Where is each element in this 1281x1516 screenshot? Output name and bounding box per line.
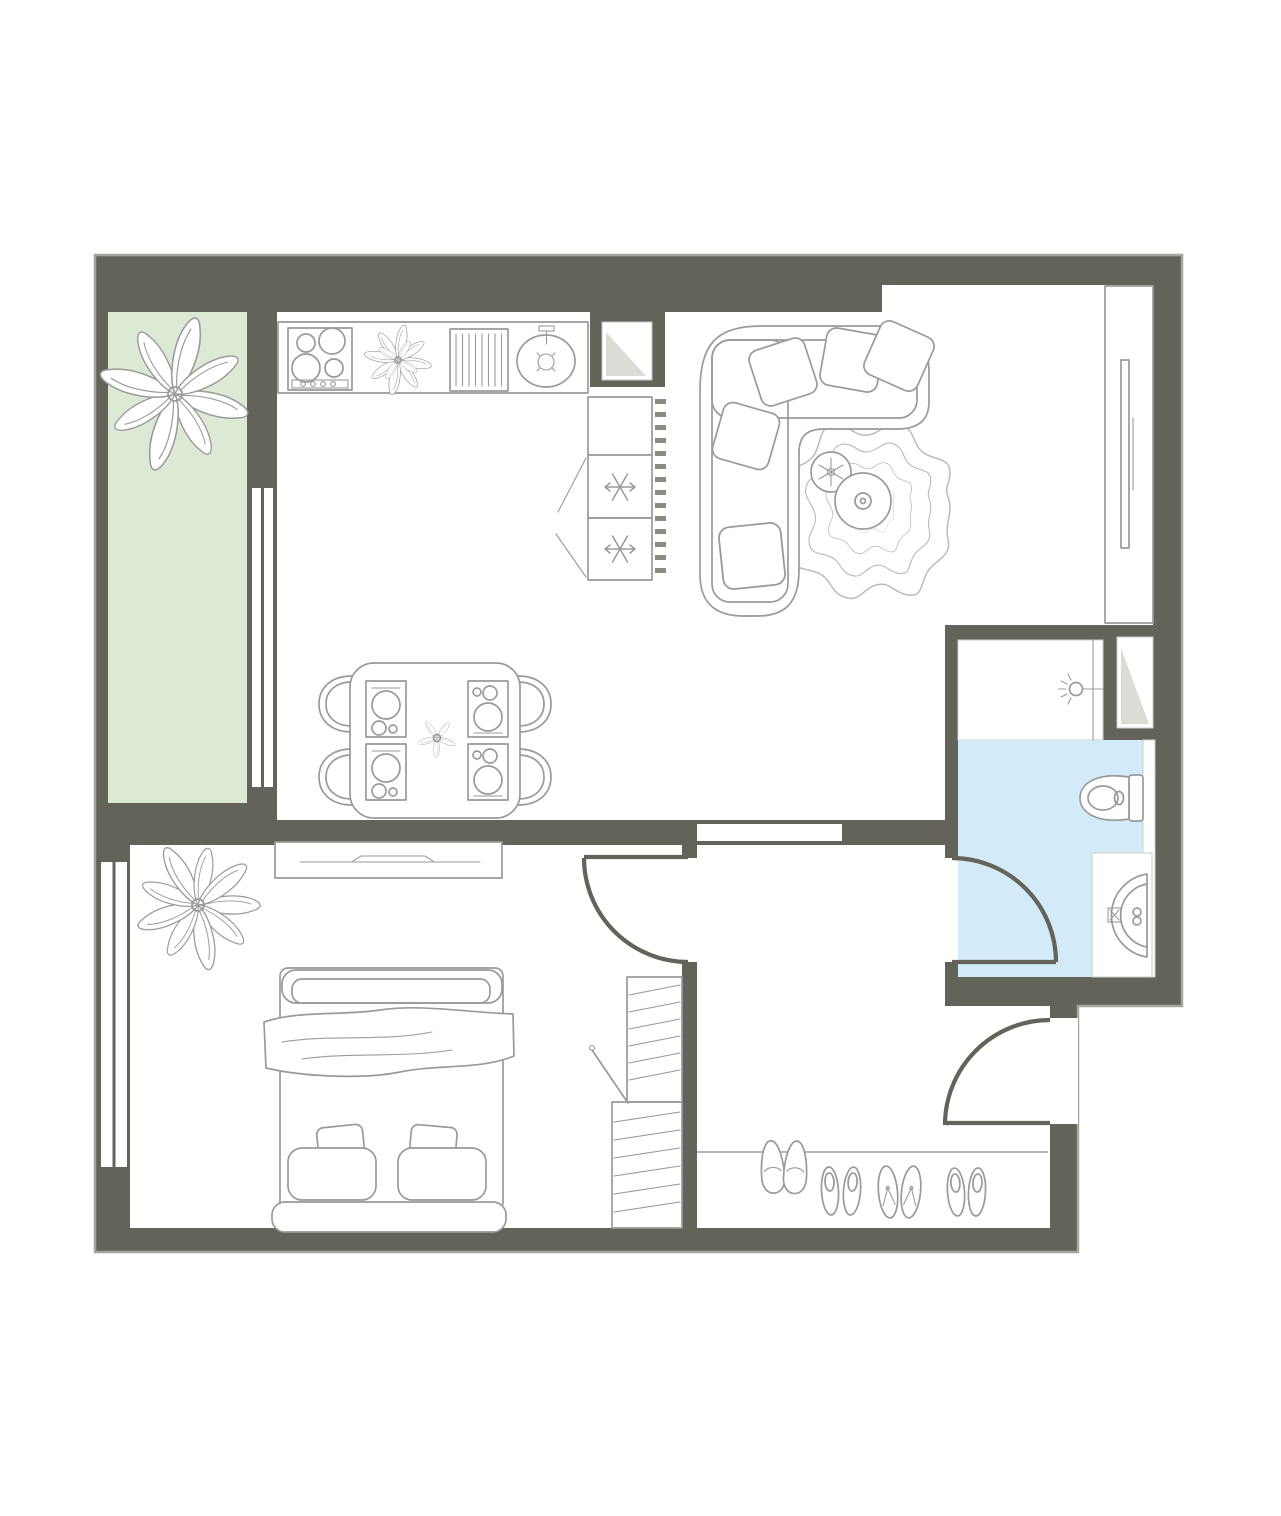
fridge-top [588,397,652,455]
passage-living-hall [697,824,842,841]
bed [264,968,514,1232]
dresser [275,842,502,878]
window-bedroom-mullion [113,862,116,1167]
coffee-table [835,473,891,529]
window-bedroom [101,862,127,1167]
tv-wall-unit [1105,286,1153,623]
dining-area [319,663,551,818]
toilet [1080,775,1143,821]
floor-bath-upper-room [958,640,1103,740]
sofa-pillow [718,522,786,590]
bed-pillow [398,1148,486,1200]
window-balcony-mullion [261,488,264,787]
floor-plan-page [0,0,1281,1516]
entry-door-opening [1050,1018,1078,1124]
window-balcony [252,488,273,787]
floor-plan-canvas [0,0,1281,1516]
bathroom-door-opening [945,858,958,962]
wash-basin [1092,853,1152,977]
bedroom-door-opening [682,858,697,962]
headboard [272,1202,506,1232]
toilet-tank [1129,775,1143,821]
wall-tv [1121,360,1129,548]
bed-pillow [288,1148,376,1200]
